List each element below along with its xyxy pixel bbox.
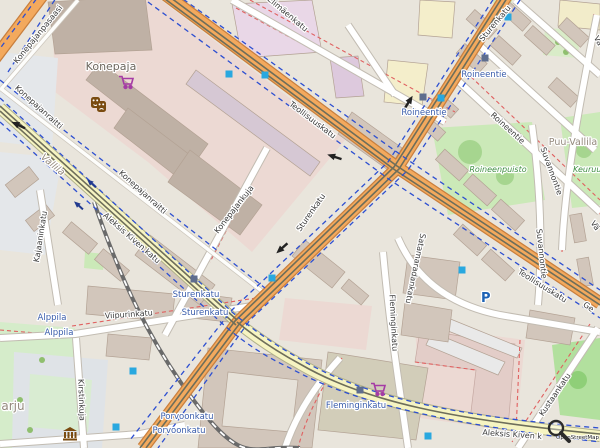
stop-label-alppila: Alppila — [38, 313, 67, 323]
map-canvas[interactable]: P Elimäenkatu Teollisuuskatu Teollisuusk… — [0, 0, 600, 448]
stop-label-sturenkatu: Sturenkatu — [173, 290, 220, 300]
region-label-harju-partial: arju — [1, 399, 24, 413]
region-label-puu-vallila: Puu-Vallila — [549, 137, 597, 148]
stop-label-alppila-2: Alppila — [45, 328, 74, 338]
park-label-keuruu-partial: Keuruu — [573, 165, 600, 174]
map-viewport[interactable]: P Elimäenkatu Teollisuuskatu Teollisuusk… — [0, 0, 600, 448]
stop-label-porvoonkatu-2: Porvoonkatu — [152, 426, 205, 436]
street-label-kirstinkuja: Kirstinkuja — [76, 379, 86, 421]
stop-label-porvoonkatu: Porvoonkatu — [160, 412, 213, 422]
region-label-konepaja: Konepaja — [86, 60, 137, 73]
stop-label-sturenkatu-2: Sturenkatu — [182, 308, 229, 318]
park-label-roineenpuisto: Roineenpuisto — [469, 165, 526, 174]
parking-icon: P — [481, 291, 491, 306]
stop-label-roineentie: Roineentie — [461, 70, 506, 80]
stop-label-fleminginkatu: Fleminginkatu — [326, 401, 386, 411]
stop-label-roineentie-2: Roineentie — [401, 108, 446, 118]
